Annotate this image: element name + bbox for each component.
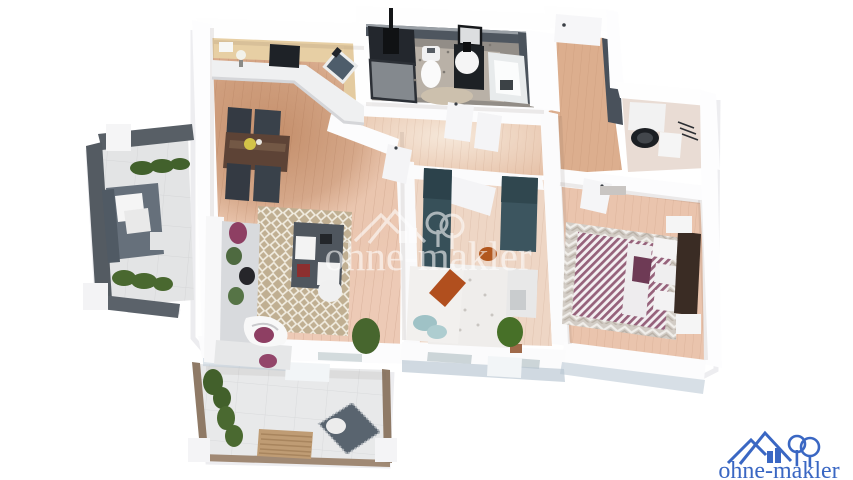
- svg-text:ohne-makler: ohne-makler: [718, 458, 839, 480]
- svg-text:ohne-makler: ohne-makler: [324, 233, 532, 279]
